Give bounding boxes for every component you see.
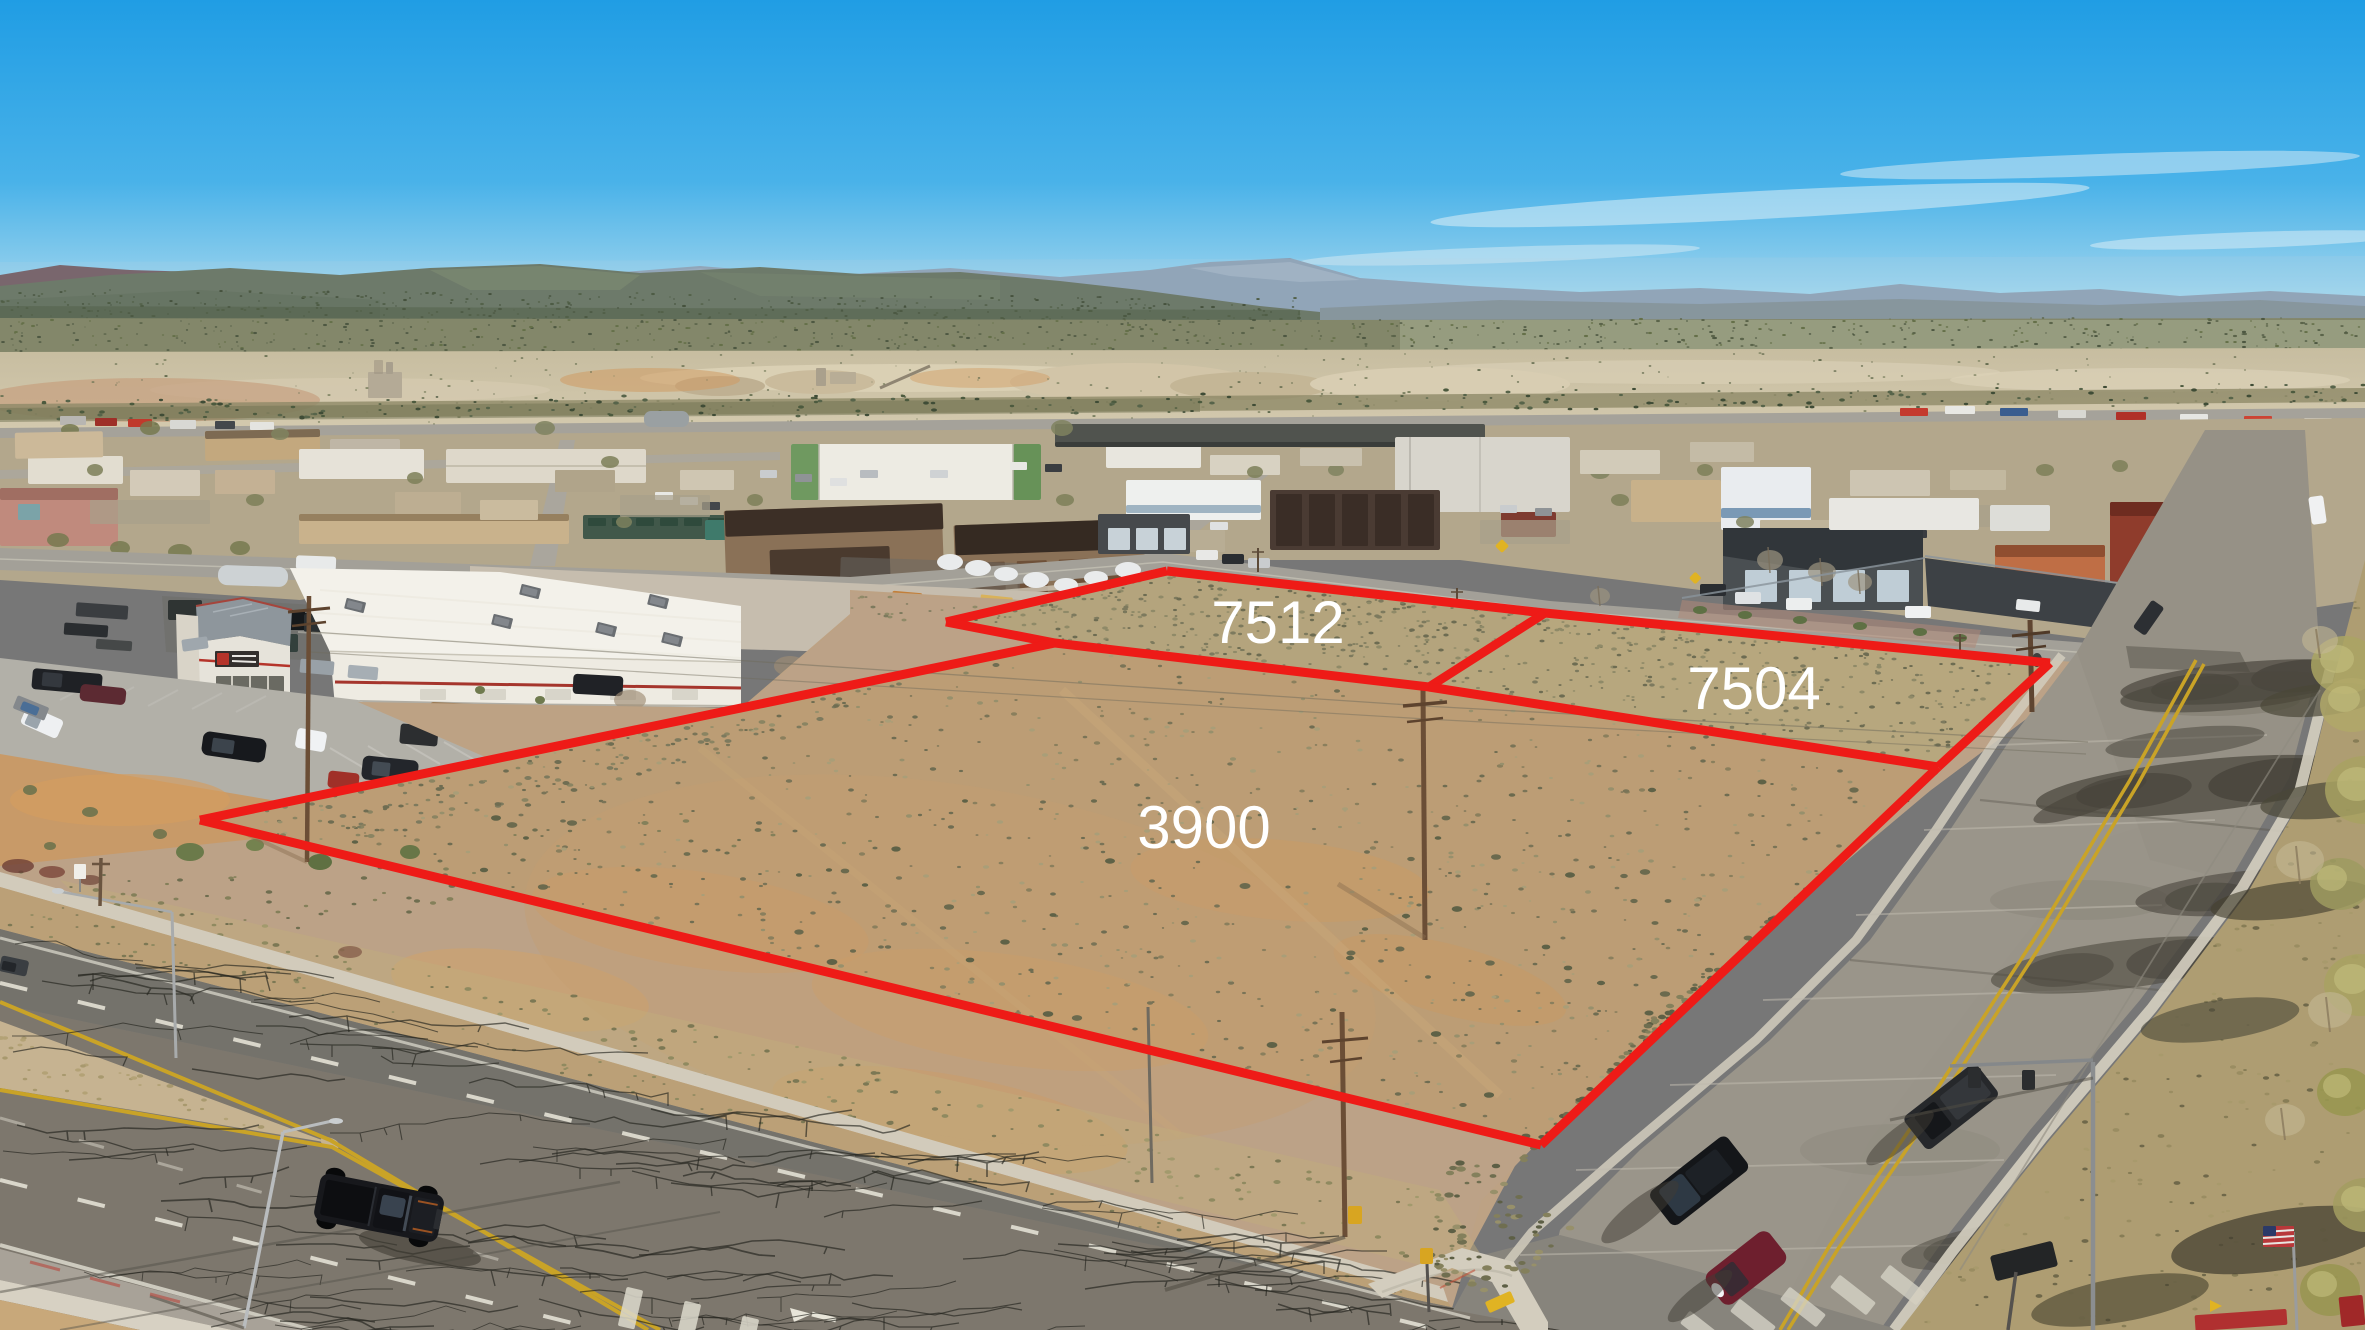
svg-text:7504: 7504 [1687,655,1820,722]
svg-text:7512: 7512 [1211,589,1344,656]
svg-text:3900: 3900 [1137,794,1270,861]
